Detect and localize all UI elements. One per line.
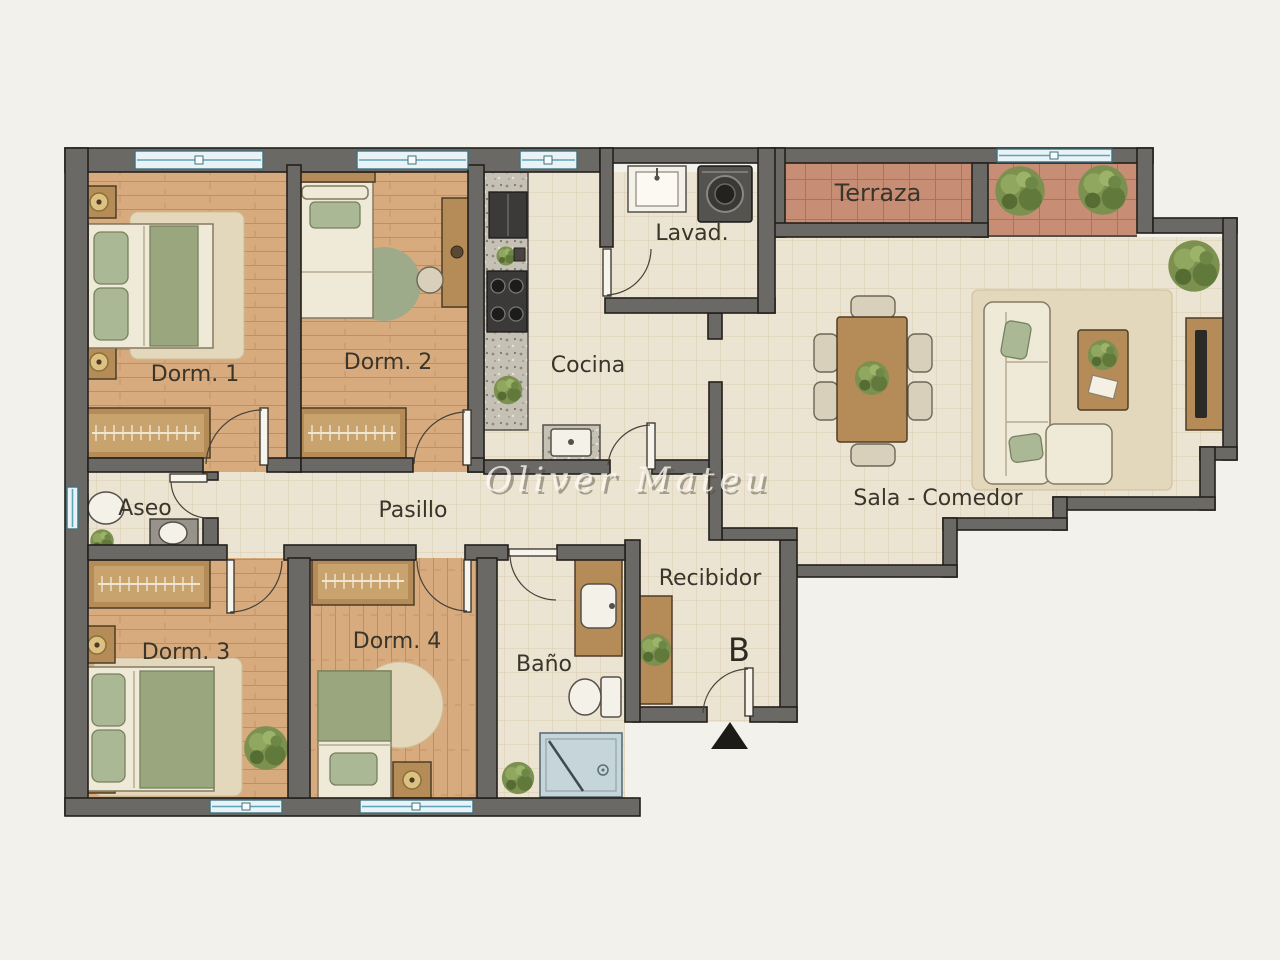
dorm4-wardrobe bbox=[312, 558, 414, 605]
recibidor-furniture bbox=[638, 596, 672, 704]
toilet-icon bbox=[569, 677, 621, 717]
plant bbox=[244, 726, 288, 770]
plant bbox=[1168, 240, 1219, 291]
floor-plan-canvas: Dorm. 1 Dorm. 2 Cocina Lavad. Terraza Sa… bbox=[0, 0, 1280, 960]
plant bbox=[494, 376, 523, 405]
room-label-terraza: Terraza bbox=[834, 179, 922, 207]
window bbox=[210, 800, 282, 813]
room-label-dorm3: Dorm. 3 bbox=[142, 640, 230, 665]
tv-icon bbox=[1195, 330, 1207, 418]
lamp-icon bbox=[88, 636, 106, 654]
room-label-dorm1: Dorm. 1 bbox=[151, 362, 239, 387]
room-label-pasillo: Pasillo bbox=[378, 498, 447, 523]
window bbox=[357, 151, 468, 169]
room-label-dorm4: Dorm. 4 bbox=[353, 629, 441, 654]
dorm1-wardrobe bbox=[82, 408, 210, 458]
entrance-marker-label: B bbox=[728, 631, 750, 669]
washing-machine-icon bbox=[698, 166, 752, 222]
room-label-bano: Baño bbox=[516, 652, 572, 677]
fridge-icon bbox=[489, 192, 527, 238]
floor-plan-page: Dorm. 1 Dorm. 2 Cocina Lavad. Terraza Sa… bbox=[0, 0, 1280, 960]
lamp-icon bbox=[90, 353, 108, 371]
plant bbox=[497, 247, 516, 266]
lamp-icon bbox=[403, 771, 421, 789]
dorm2-single-bed bbox=[295, 172, 375, 318]
stove-icon bbox=[487, 271, 527, 332]
shower bbox=[540, 733, 622, 797]
sliding-door-window bbox=[997, 149, 1112, 162]
room-label-recibidor: Recibidor bbox=[659, 566, 763, 591]
window bbox=[135, 151, 263, 169]
plant bbox=[639, 634, 671, 666]
room-label-cocina: Cocina bbox=[551, 353, 625, 378]
plant bbox=[995, 166, 1044, 215]
svg-text:Oliver Mateu: Oliver Mateu bbox=[485, 460, 772, 500]
window bbox=[67, 487, 78, 529]
coffee-table bbox=[1078, 330, 1128, 410]
window bbox=[520, 151, 577, 169]
room-label-sala: Sala - Comedor bbox=[853, 486, 1023, 511]
watermark: Oliver Mateu Oliver Mateu bbox=[485, 460, 775, 503]
plant bbox=[1078, 165, 1127, 214]
dorm2-wardrobe bbox=[298, 408, 406, 458]
dorm2-desk-chair bbox=[417, 267, 443, 293]
dorm1-double-bed bbox=[78, 222, 213, 350]
bath-vanity bbox=[575, 556, 622, 656]
plant bbox=[1088, 340, 1118, 370]
room-label-lavadero: Lavad. bbox=[655, 221, 728, 246]
dorm3-double-bed bbox=[77, 665, 214, 793]
room-label-dorm2: Dorm. 2 bbox=[344, 350, 432, 375]
plant bbox=[855, 361, 889, 395]
dorm3-wardrobe bbox=[88, 560, 210, 608]
tv-console bbox=[1186, 318, 1224, 430]
laundry-sink bbox=[628, 166, 686, 212]
dorm4-single-bed bbox=[318, 671, 391, 799]
room-label-aseo: Aseo bbox=[118, 496, 172, 521]
window bbox=[360, 800, 473, 813]
lamp-icon bbox=[90, 193, 108, 211]
plant bbox=[502, 762, 534, 794]
